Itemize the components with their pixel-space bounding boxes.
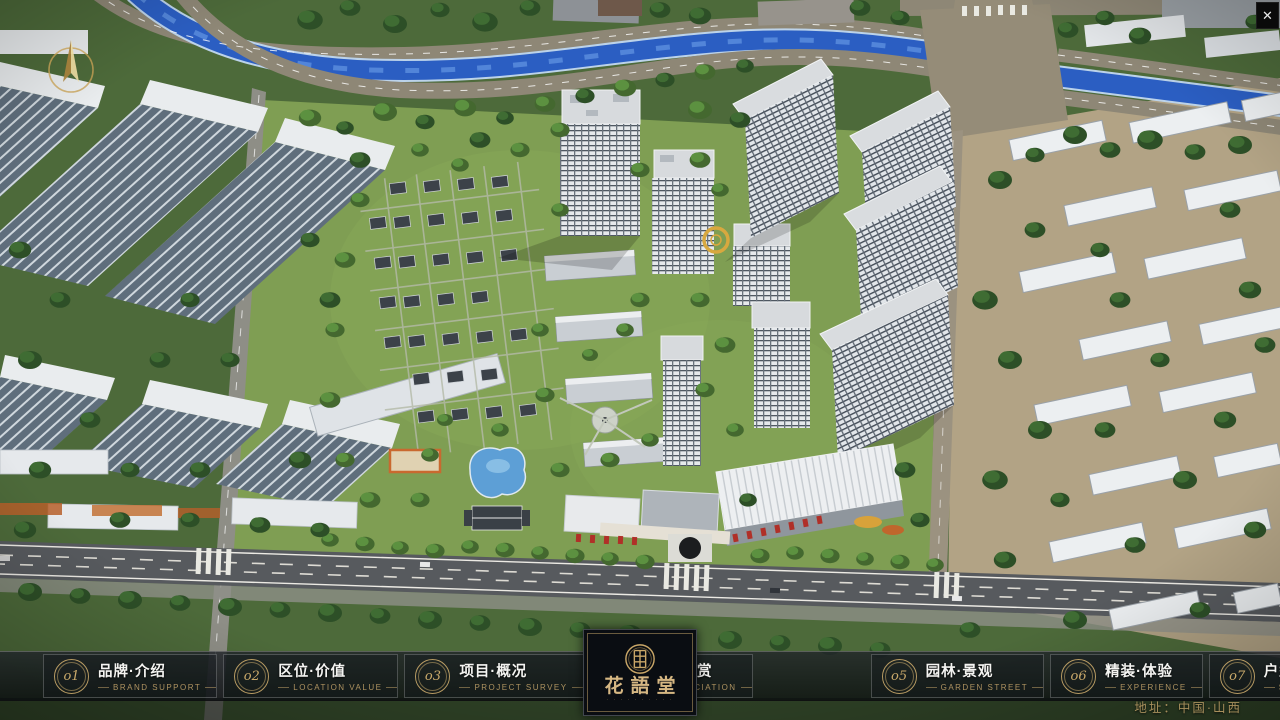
nav-item-title: 品牌·介绍 bbox=[98, 660, 216, 681]
nav-item-garden-landscape[interactable]: o5 园林·景观 GARDEN STREET bbox=[871, 654, 1045, 698]
nav-item-title: 项目·概况 bbox=[459, 660, 582, 681]
nav-item-title: 精装·体验 bbox=[1105, 660, 1202, 681]
nav-item-project-survey[interactable]: o3 项目·概况 PROJECT SURVEY bbox=[404, 654, 583, 698]
nav-logo-spacer bbox=[756, 652, 868, 700]
masterplan-aerial-render bbox=[0, 0, 1280, 720]
nav-item-unit-distribution[interactable]: o7 户型·分布 SHOW ROOM bbox=[1209, 654, 1280, 698]
nav-item-brand-intro[interactable]: o1 品牌·介绍 BRAND SUPPORT bbox=[43, 654, 217, 698]
nav-item-subtitle: BRAND SUPPORT bbox=[98, 683, 216, 692]
nav-item-subtitle: PROJECT SURVEY bbox=[459, 683, 582, 692]
nav-item-location-value[interactable]: o2 区位·价值 LOCATION VALUE bbox=[223, 654, 398, 698]
nav-item-title: 区位·价值 bbox=[278, 660, 397, 681]
close-button[interactable]: ✕ bbox=[1256, 2, 1279, 29]
project-name: 花語堂 bbox=[597, 677, 682, 696]
nav-item-title: 户型·分布 bbox=[1264, 660, 1280, 681]
project-tagline: · · · · · · · · · · bbox=[606, 698, 673, 703]
nav-number-ring: o6 bbox=[1061, 659, 1096, 694]
nav-item-subtitle: GARDEN STREET bbox=[926, 683, 1044, 692]
nav-item-interior-experience[interactable]: o6 精装·体验 EXPERIENCE bbox=[1050, 654, 1203, 698]
compass-north-icon bbox=[44, 36, 98, 96]
project-address: 地址：中国·山西 bbox=[1134, 697, 1242, 716]
nav-number-ring: o7 bbox=[1220, 659, 1255, 694]
nav-number-ring: o1 bbox=[54, 659, 89, 694]
nav-number-ring: o3 bbox=[415, 659, 450, 694]
nav-item-subtitle: EXPERIENCE bbox=[1105, 683, 1202, 692]
nav-number-ring: o5 bbox=[882, 659, 917, 694]
project-logo-panel[interactable]: 花語堂 · · · · · · · · · · bbox=[583, 629, 697, 716]
sales-presentation-screen: ✕ o1 品牌·介绍 BRAND SUPPORT o2 区位·价值 LOCATI… bbox=[0, 0, 1280, 720]
nav-item-subtitle: SHOW ROOM bbox=[1264, 683, 1280, 692]
nav-number-ring: o2 bbox=[234, 659, 269, 694]
project-seal-icon bbox=[624, 643, 656, 675]
nav-item-title: 园林·景观 bbox=[926, 660, 1044, 681]
nav-item-subtitle: LOCATION VALUE bbox=[278, 683, 397, 692]
